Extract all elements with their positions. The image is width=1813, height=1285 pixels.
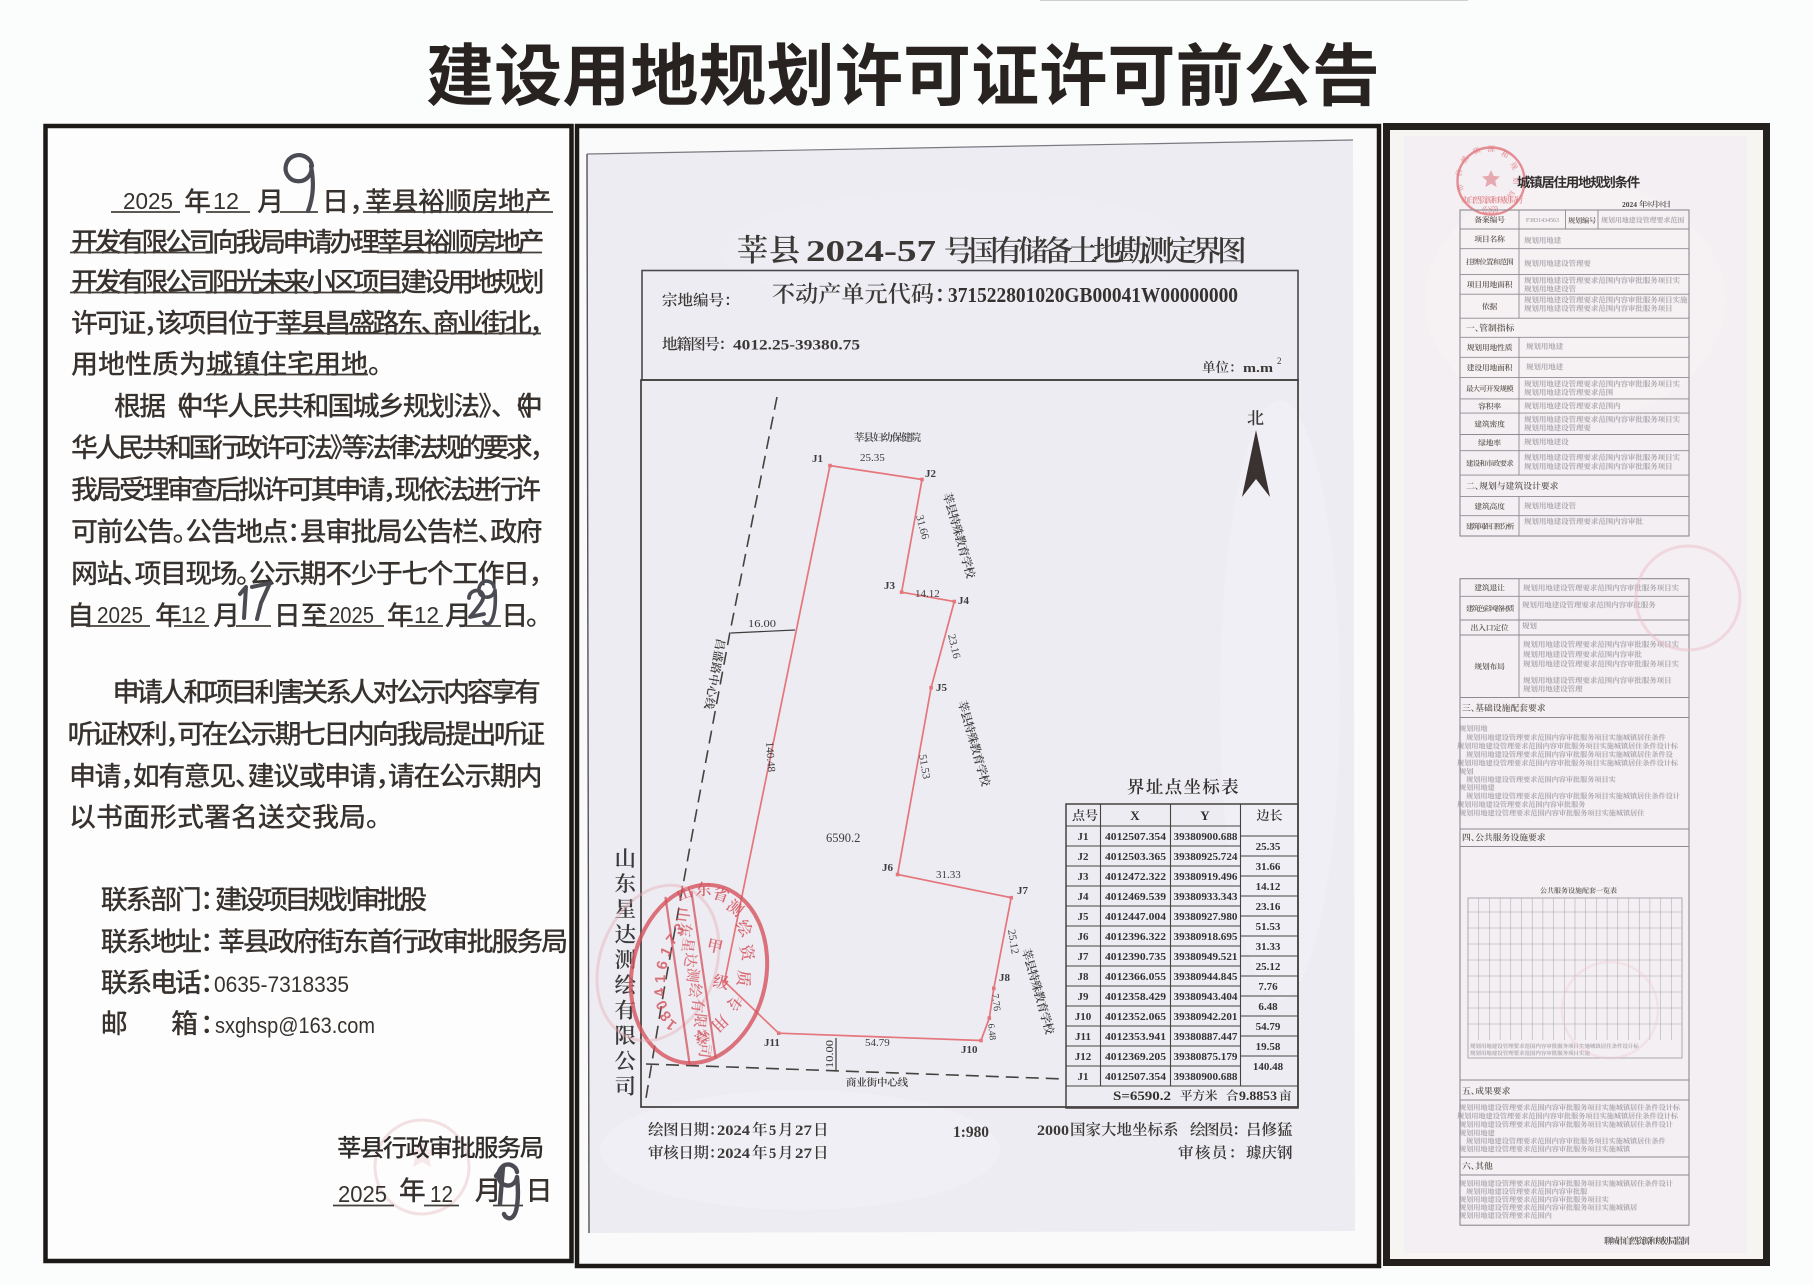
svg-text:2025: 2025 [97, 602, 143, 628]
svg-text:31.33: 31.33 [1256, 941, 1281, 953]
svg-text:39380927.980: 39380927.980 [1174, 911, 1239, 923]
svg-text:J5: J5 [1078, 911, 1090, 923]
svg-text:39380887.447: 39380887.447 [1174, 1031, 1239, 1043]
svg-text:12: 12 [181, 602, 206, 628]
svg-text:4012352.065: 4012352.065 [1105, 1011, 1167, 1023]
svg-text:2025: 2025 [123, 188, 173, 214]
svg-text:39380919.496: 39380919.496 [1174, 871, 1239, 883]
svg-text:J7: J7 [1017, 885, 1029, 897]
svg-text:10.00: 10.00 [825, 1040, 836, 1068]
svg-text:J6: J6 [882, 862, 894, 874]
svg-text:16.00: 16.00 [748, 619, 776, 630]
svg-text:J11: J11 [1075, 1031, 1091, 1043]
svg-text:1: 1 [652, 975, 669, 983]
svg-text:4012369.205: 4012369.205 [1105, 1051, 1167, 1063]
svg-text:J5: J5 [936, 682, 948, 694]
svg-text:39380925.724: 39380925.724 [1174, 851, 1239, 863]
svg-text:25.35: 25.35 [860, 452, 885, 464]
svg-text:39380900.688: 39380900.688 [1174, 1071, 1239, 1083]
svg-text:J7: J7 [1078, 951, 1090, 963]
svg-text:23.16: 23.16 [1256, 901, 1281, 913]
svg-text:J3: J3 [1078, 871, 1090, 883]
svg-text:2025: 2025 [338, 1181, 387, 1207]
svg-text:12: 12 [213, 188, 239, 214]
svg-text:J10: J10 [1075, 1011, 1092, 1023]
svg-text:140.48: 140.48 [763, 741, 777, 773]
svg-text:2024: 2024 [717, 1146, 750, 1162]
svg-text:4012366.055: 4012366.055 [1105, 971, 1167, 983]
svg-text:2: 2 [1277, 356, 1282, 366]
svg-text:2000: 2000 [1037, 1123, 1069, 1139]
svg-text:39380949.521: 39380949.521 [1174, 951, 1238, 963]
svg-text:39380943.404: 39380943.404 [1174, 991, 1239, 1003]
svg-text:140.48: 140.48 [1253, 1061, 1284, 1073]
svg-text:5: 5 [769, 1123, 776, 1139]
svg-text:J2: J2 [1078, 851, 1090, 863]
svg-text:0635-7318335: 0635-7318335 [214, 972, 349, 997]
svg-text:J4: J4 [958, 595, 970, 607]
svg-text:25.35: 25.35 [1256, 841, 1281, 853]
svg-text:J10: J10 [961, 1044, 978, 1056]
svg-text:6.48: 6.48 [1258, 1001, 1278, 1013]
svg-text:4012353.941: 4012353.941 [1105, 1031, 1166, 1043]
svg-text:4012358.429: 4012358.429 [1105, 991, 1167, 1003]
svg-text:39380900.688: 39380900.688 [1174, 831, 1239, 843]
svg-text:39380875.179: 39380875.179 [1174, 1051, 1239, 1063]
svg-text:371522801020GB00041W00000000: 371522801020GB00041W00000000 [948, 283, 1238, 307]
svg-text:7.76: 7.76 [1258, 981, 1278, 993]
svg-text:27: 27 [795, 1123, 812, 1139]
svg-text:J8: J8 [999, 972, 1011, 984]
svg-text:J1: J1 [1078, 1071, 1089, 1083]
svg-text:4012472.322: 4012472.322 [1105, 871, 1167, 883]
svg-text:5: 5 [769, 1146, 776, 1162]
svg-text:7.76: 7.76 [989, 993, 1002, 1012]
svg-text:27: 27 [795, 1146, 812, 1162]
svg-text:39380942.201: 39380942.201 [1174, 1011, 1238, 1023]
svg-text:14.12: 14.12 [915, 588, 940, 600]
svg-text:J6: J6 [1078, 931, 1090, 943]
svg-text:4012469.539: 4012469.539 [1105, 891, 1167, 903]
svg-text:6590.2: 6590.2 [826, 831, 860, 845]
svg-text:J8: J8 [1078, 971, 1090, 983]
svg-text:12: 12 [430, 1181, 453, 1207]
svg-text:X: X [1130, 808, 1140, 823]
svg-text:14.12: 14.12 [1256, 881, 1281, 893]
svg-text:9.8853: 9.8853 [1239, 1089, 1277, 1103]
svg-text:6.48: 6.48 [985, 1023, 997, 1041]
svg-text:39380918.695: 39380918.695 [1174, 931, 1239, 943]
svg-text:J11: J11 [764, 1037, 780, 1049]
svg-text:1:980: 1:980 [953, 1124, 989, 1141]
svg-text:m.m: m.m [1243, 360, 1273, 375]
svg-text:S=6590.2: S=6590.2 [1113, 1089, 1171, 1103]
svg-text:19.58: 19.58 [1256, 1041, 1281, 1053]
svg-text:4012447.004: 4012447.004 [1105, 911, 1167, 923]
svg-text:25.12: 25.12 [1256, 961, 1281, 973]
svg-text:2025: 2025 [329, 602, 374, 628]
svg-text:J1: J1 [1078, 831, 1089, 843]
svg-text:4012507.354: 4012507.354 [1105, 831, 1167, 843]
svg-text:4012503.365: 4012503.365 [1105, 851, 1167, 863]
svg-text:J3: J3 [884, 580, 896, 592]
svg-text:J2: J2 [925, 468, 937, 480]
svg-text:4012.25-39380.75: 4012.25-39380.75 [733, 338, 860, 354]
svg-text:Y: Y [1200, 808, 1210, 823]
svg-text:4012396.322: 4012396.322 [1105, 931, 1167, 943]
svg-text:12: 12 [414, 602, 439, 628]
svg-text:J12: J12 [1075, 1051, 1092, 1063]
svg-text:4012390.735: 4012390.735 [1105, 951, 1167, 963]
svg-text:39380944.845: 39380944.845 [1174, 971, 1239, 983]
svg-text:39380933.343: 39380933.343 [1174, 891, 1239, 903]
svg-text:J4: J4 [1078, 891, 1090, 903]
svg-text:51.53: 51.53 [1256, 921, 1281, 933]
svg-text:31.66: 31.66 [1256, 861, 1281, 873]
svg-text:31.33: 31.33 [936, 869, 961, 881]
svg-text:2024: 2024 [1622, 200, 1637, 209]
svg-text:sxghsp@163.com: sxghsp@163.com [215, 1013, 375, 1038]
svg-text:4012507.354: 4012507.354 [1105, 1071, 1167, 1083]
svg-text:54.79: 54.79 [865, 1037, 890, 1049]
svg-text:F3831434563: F3831434563 [1526, 217, 1559, 224]
svg-text:2024: 2024 [717, 1123, 750, 1139]
svg-text:2024-57: 2024-57 [806, 233, 936, 268]
svg-text:54.79: 54.79 [1256, 1021, 1281, 1033]
svg-text:J9: J9 [1078, 991, 1090, 1003]
svg-text:J1: J1 [812, 453, 823, 465]
